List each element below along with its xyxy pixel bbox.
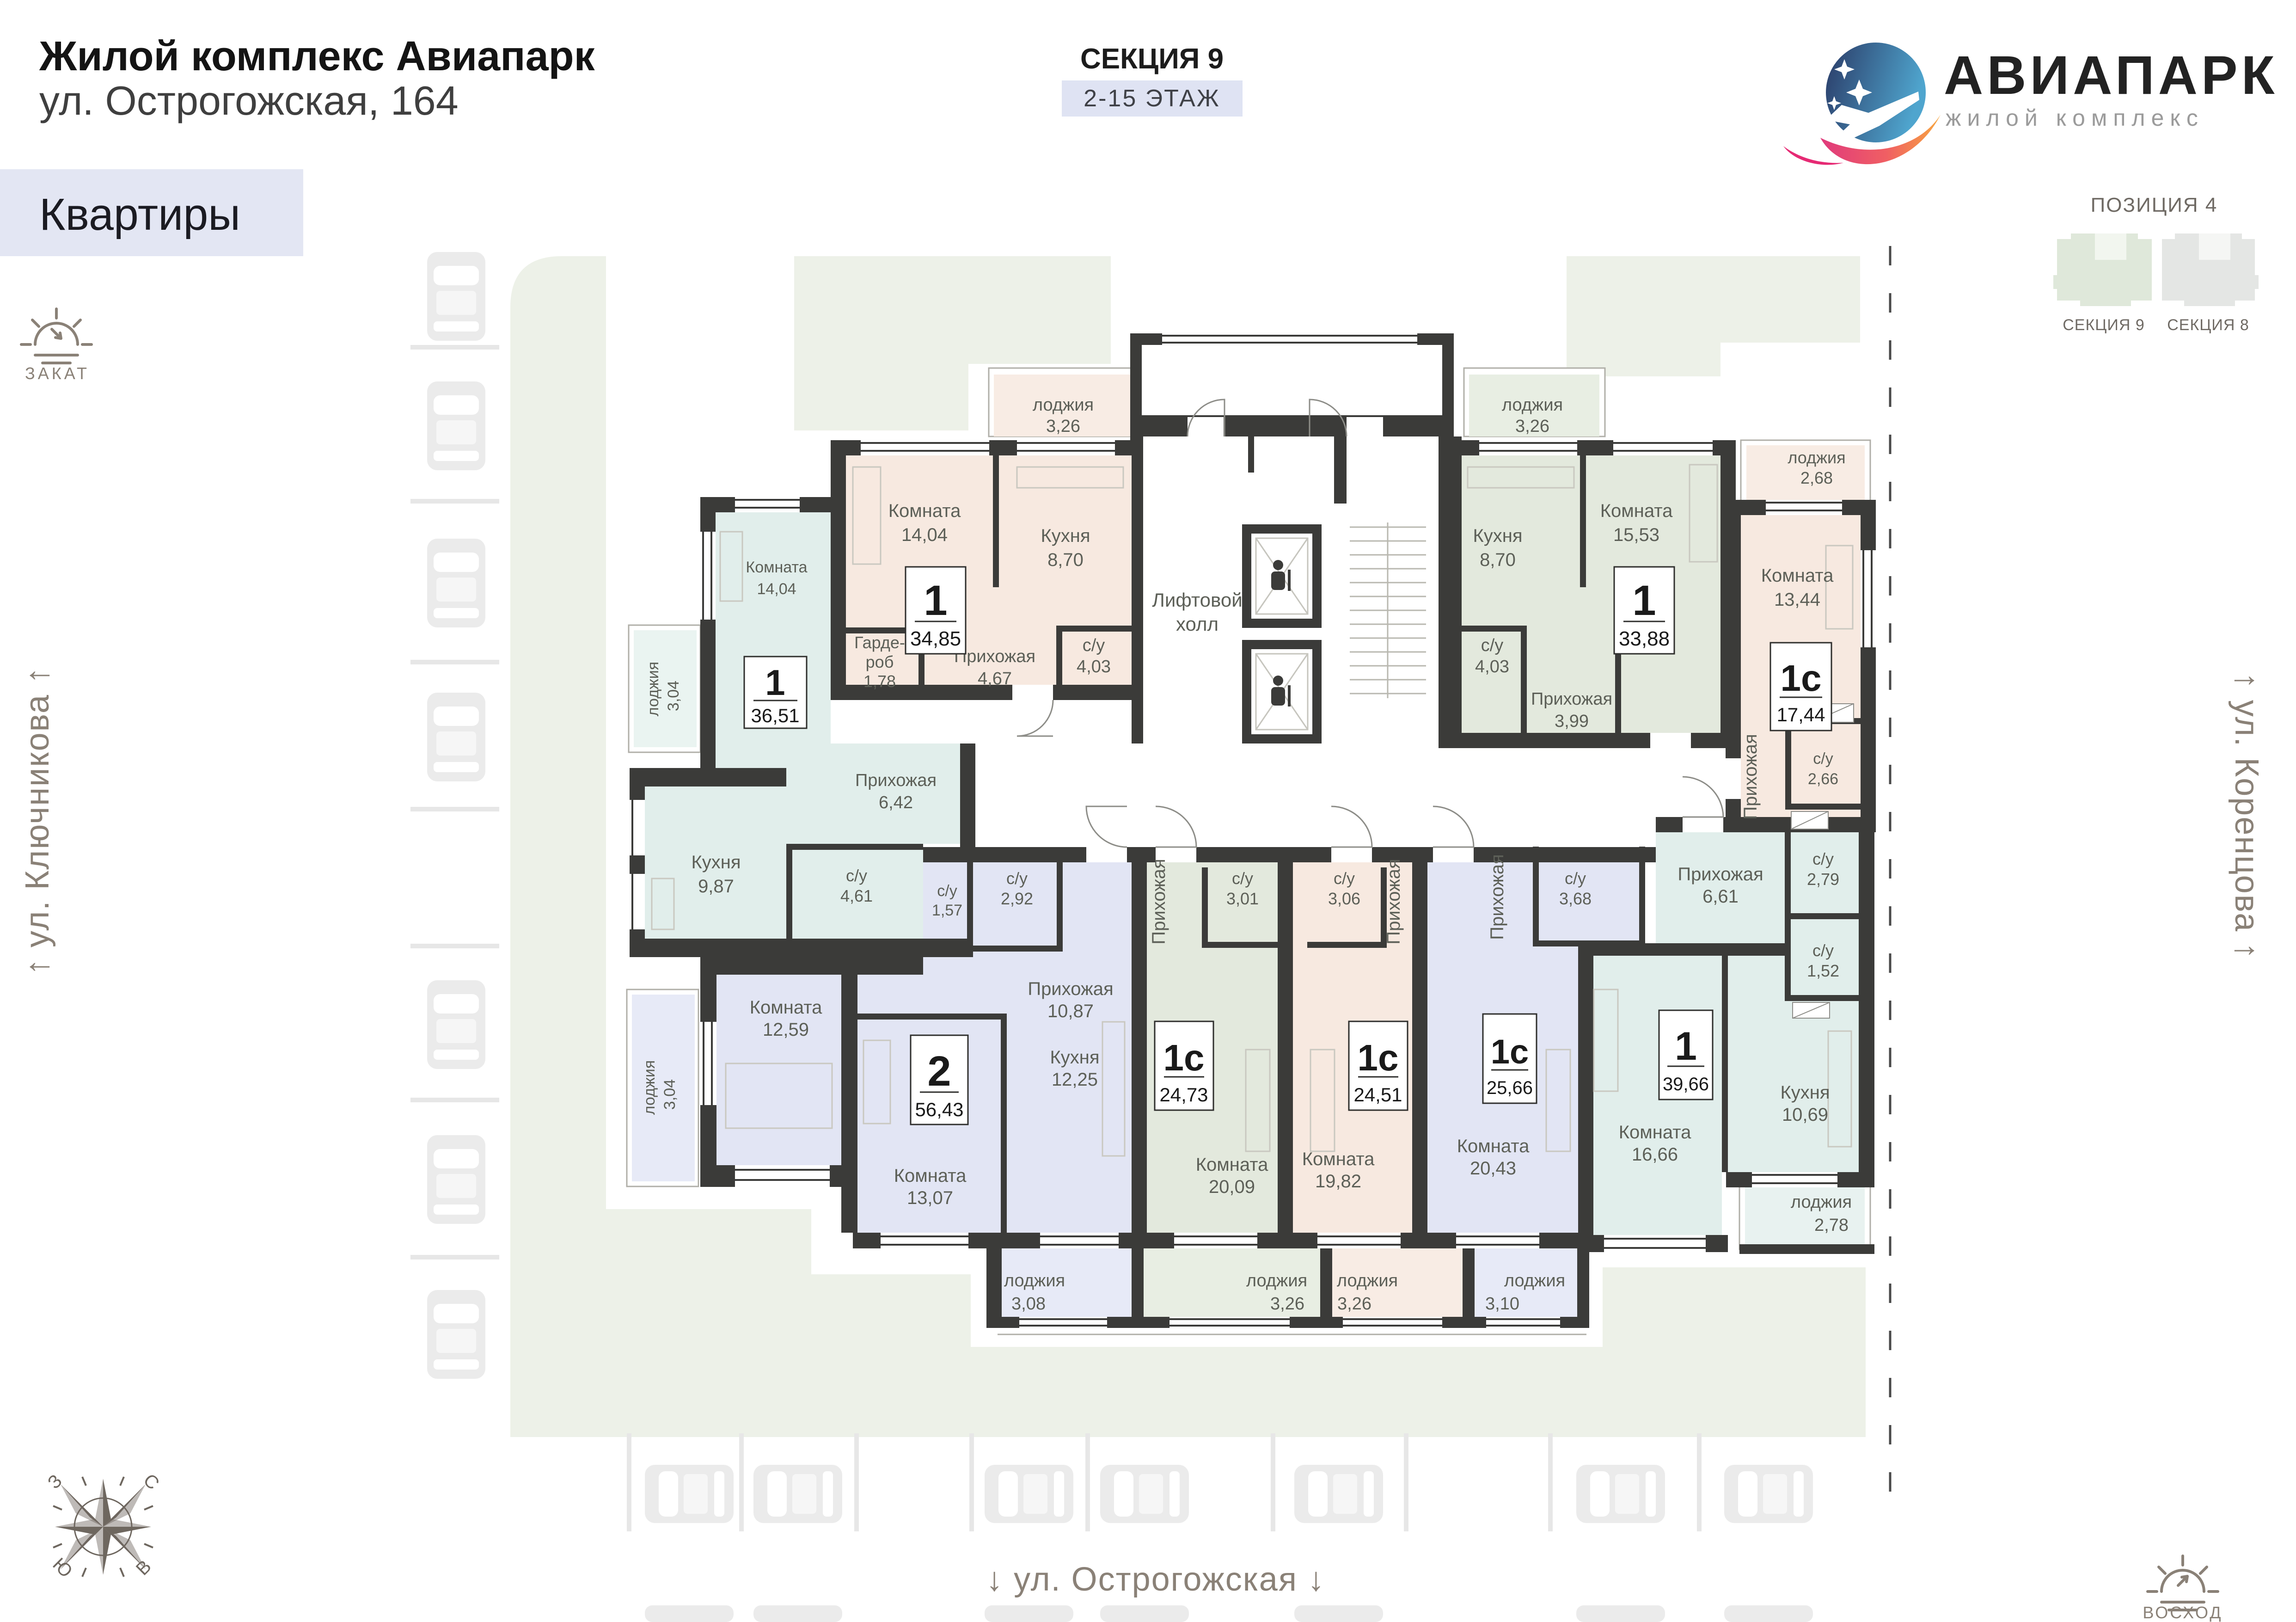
svg-text:с/у: с/у [1813, 750, 1833, 768]
svg-text:лоджия: лоджия [1337, 1271, 1398, 1290]
svg-text:34,85: 34,85 [910, 627, 961, 650]
svg-text:Прихожая: Прихожая [1740, 734, 1761, 819]
svg-text:Кухня: Кухня [1041, 526, 1090, 546]
svg-text:холл: холл [1176, 613, 1218, 635]
svg-text:13,07: 13,07 [907, 1188, 953, 1208]
svg-text:АВИАПАРК: АВИАПАРК [1944, 45, 2278, 106]
svg-text:1: 1 [765, 662, 785, 703]
svg-text:с/у: с/у [937, 882, 957, 900]
svg-text:2: 2 [927, 1048, 951, 1095]
svg-text:3,06: 3,06 [1328, 889, 1360, 908]
svg-text:Кухня: Кухня [691, 852, 741, 872]
svg-text:лоджия: лоджия [1033, 395, 1094, 415]
svg-text:2,68: 2,68 [1800, 468, 1833, 487]
svg-text:с/у: с/у [846, 866, 867, 885]
svg-text:10,69: 10,69 [1782, 1105, 1828, 1125]
svg-text:лоджия: лоджия [1246, 1271, 1307, 1290]
svg-text:6,42: 6,42 [879, 793, 913, 812]
svg-text:жилой комплекс: жилой комплекс [1946, 105, 2204, 131]
svg-text:с/у: с/у [1812, 941, 1834, 960]
svg-text:Комната: Комната [1196, 1155, 1268, 1175]
svg-text:Прихожая: Прихожая [855, 771, 937, 790]
svg-text:39,66: 39,66 [1663, 1074, 1709, 1094]
svg-text:3,04: 3,04 [665, 681, 682, 711]
svg-text:3,04: 3,04 [661, 1079, 679, 1110]
svg-text:24,51: 24,51 [1353, 1084, 1402, 1106]
svg-text:14,04: 14,04 [901, 525, 948, 545]
svg-text:9,87: 9,87 [698, 876, 734, 897]
svg-text:1с: 1с [1491, 1032, 1529, 1071]
svg-text:19,82: 19,82 [1315, 1171, 1361, 1192]
svg-text:25,66: 25,66 [1487, 1078, 1533, 1098]
svg-text:1с: 1с [1358, 1037, 1399, 1078]
svg-text:ул. Острогожская, 164: ул. Острогожская, 164 [39, 78, 459, 123]
svg-text:Комната: Комната [1457, 1136, 1530, 1156]
svg-text:1с: 1с [1781, 657, 1822, 699]
svg-text:1с: 1с [1163, 1037, 1205, 1078]
svg-text:Комната: Комната [1619, 1122, 1691, 1143]
svg-text:↑ ул. Коренцова ↑: ↑ ул. Коренцова ↑ [2228, 672, 2265, 960]
svg-text:Комната: Комната [1600, 501, 1673, 521]
svg-text:3,08: 3,08 [1011, 1294, 1046, 1314]
svg-text:с/у: с/у [1481, 636, 1504, 655]
svg-text:лоджия: лоджия [1504, 1271, 1565, 1290]
svg-text:Гарде-: Гарде- [854, 633, 905, 652]
svg-text:20,43: 20,43 [1470, 1158, 1516, 1179]
svg-text:10,87: 10,87 [1047, 1001, 1094, 1021]
svg-text:15,53: 15,53 [1613, 525, 1659, 545]
svg-text:3,26: 3,26 [1270, 1294, 1304, 1314]
svg-text:Жилой комплекс Авиапарк: Жилой комплекс Авиапарк [39, 33, 595, 80]
svg-text:роб: роб [866, 652, 894, 671]
svg-text:с/у: с/у [1232, 869, 1253, 888]
svg-text:3,26: 3,26 [1046, 417, 1080, 436]
svg-text:Прихожая: Прихожая [1487, 854, 1507, 940]
svg-text:с/у: с/у [1006, 869, 1028, 888]
svg-text:1,57: 1,57 [932, 902, 962, 919]
svg-text:с/у: с/у [1565, 869, 1586, 888]
svg-text:3,99: 3,99 [1555, 712, 1589, 731]
svg-text:Комната: Комната [1302, 1149, 1375, 1169]
svg-text:Комната: Комната [750, 997, 822, 1018]
svg-text:Лифтовой: Лифтовой [1152, 589, 1242, 611]
svg-text:12,59: 12,59 [763, 1020, 809, 1040]
svg-text:3,01: 3,01 [1226, 889, 1259, 908]
svg-text:Прихожая: Прихожая [1531, 689, 1612, 709]
svg-text:с/у: с/у [1334, 869, 1355, 888]
svg-text:Квартиры: Квартиры [39, 189, 240, 240]
svg-text:Прихожая: Прихожая [1678, 864, 1763, 885]
svg-text:4,03: 4,03 [1475, 657, 1509, 676]
svg-text:2,79: 2,79 [1807, 870, 1839, 889]
svg-text:Кухня: Кухня [1473, 526, 1522, 546]
svg-text:лоджия: лоджия [1004, 1271, 1065, 1290]
svg-text:8,70: 8,70 [1047, 550, 1084, 570]
svg-text:ВОСХОД: ВОСХОД [2143, 1603, 2223, 1622]
svg-text:лоджия: лоджия [1788, 448, 1845, 467]
svg-text:3,26: 3,26 [1515, 417, 1549, 436]
svg-text:1,78: 1,78 [863, 672, 896, 691]
svg-text:Прихожая: Прихожая [1384, 859, 1404, 944]
svg-text:лоджия: лоджия [641, 1060, 658, 1115]
svg-text:Комната: Комната [746, 559, 807, 576]
svg-text:СЕКЦИЯ 8: СЕКЦИЯ 8 [2167, 316, 2249, 334]
svg-text:36,51: 36,51 [751, 705, 799, 726]
svg-text:13,44: 13,44 [1774, 590, 1820, 610]
svg-text:Комната: Комната [1761, 565, 1834, 586]
svg-text:1: 1 [1632, 577, 1656, 624]
svg-text:Прихожая: Прихожая [1028, 979, 1113, 999]
svg-text:56,43: 56,43 [915, 1099, 963, 1120]
svg-text:2-15 ЭТАЖ: 2-15 ЭТАЖ [1084, 85, 1220, 112]
svg-text:Комната: Комната [894, 1166, 967, 1186]
svg-text:с/у: с/у [1083, 636, 1105, 655]
svg-text:6,61: 6,61 [1702, 886, 1739, 907]
svg-text:2,66: 2,66 [1808, 770, 1838, 788]
svg-text:14,04: 14,04 [757, 580, 796, 598]
svg-text:лоджия: лоджия [1791, 1192, 1852, 1212]
svg-text:Кухня: Кухня [1780, 1082, 1830, 1103]
svg-text:12,25: 12,25 [1052, 1069, 1098, 1090]
svg-text:3,68: 3,68 [1559, 889, 1592, 908]
svg-text:3,26: 3,26 [1337, 1294, 1371, 1314]
svg-text:1: 1 [1675, 1024, 1697, 1069]
svg-text:Комната: Комната [888, 501, 961, 521]
svg-text:↑ ул. Ключникова ↑: ↑ ул. Ключникова ↑ [19, 666, 56, 975]
svg-text:2,92: 2,92 [1001, 889, 1033, 908]
svg-text:СЕКЦИЯ 9: СЕКЦИЯ 9 [2063, 316, 2145, 334]
svg-text:17,44: 17,44 [1776, 704, 1825, 725]
svg-text:↓ ул. Острогожская ↓: ↓ ул. Острогожская ↓ [986, 1561, 1325, 1598]
svg-text:4,03: 4,03 [1077, 657, 1111, 676]
svg-text:лоджия: лоджия [1502, 395, 1563, 415]
svg-text:Прихожая: Прихожая [1149, 859, 1169, 944]
svg-text:ЗАКАТ: ЗАКАТ [25, 364, 90, 383]
svg-text:20,09: 20,09 [1209, 1177, 1255, 1197]
svg-text:с/у: с/у [1812, 849, 1834, 868]
svg-text:1,52: 1,52 [1807, 961, 1839, 980]
svg-text:24,73: 24,73 [1159, 1084, 1208, 1106]
svg-text:Кухня: Кухня [1050, 1047, 1099, 1068]
svg-text:1: 1 [924, 577, 947, 624]
svg-text:8,70: 8,70 [1480, 550, 1516, 570]
svg-text:СЕКЦИЯ 9: СЕКЦИЯ 9 [1080, 43, 1224, 75]
svg-text:33,88: 33,88 [1619, 627, 1670, 650]
svg-text:4,61: 4,61 [840, 886, 873, 905]
svg-text:4,67: 4,67 [978, 669, 1012, 688]
svg-text:2,78: 2,78 [1814, 1216, 1849, 1235]
svg-text:3,10: 3,10 [1485, 1294, 1519, 1314]
svg-text:ПОЗИЦИЯ 4: ПОЗИЦИЯ 4 [2091, 194, 2218, 216]
svg-text:лоджия: лоджия [644, 662, 662, 716]
svg-text:16,66: 16,66 [1632, 1144, 1678, 1165]
